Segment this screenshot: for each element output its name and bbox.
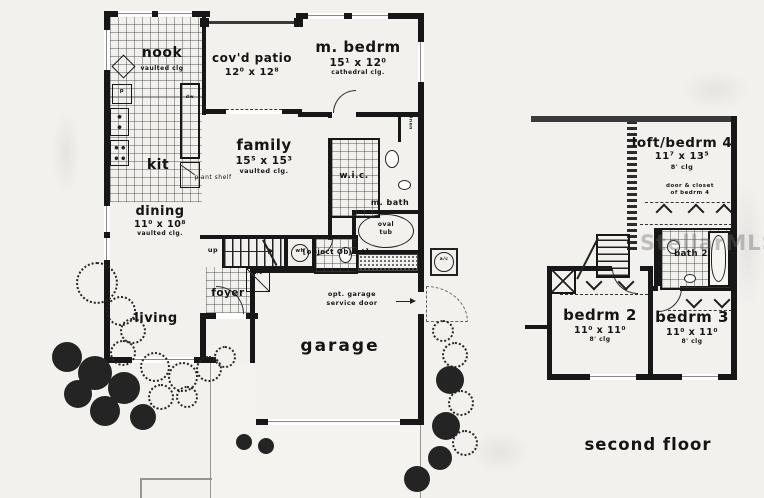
bedrm2-clg: 8' clg bbox=[589, 337, 610, 343]
patio-post bbox=[294, 18, 303, 27]
bedrm3-clg: 8' clg bbox=[681, 339, 702, 345]
hall-door-gap bbox=[328, 118, 332, 138]
plant-shelf-label: plant shelf bbox=[194, 175, 231, 181]
linen-label: linen bbox=[407, 115, 412, 130]
bath2-sink bbox=[684, 274, 696, 283]
utility-pad bbox=[358, 254, 418, 271]
patio-wall bbox=[206, 21, 300, 24]
shrub bbox=[176, 386, 198, 408]
mbedrm-clg: cathedral clg. bbox=[331, 70, 384, 76]
window bbox=[158, 11, 192, 17]
ac-condenser-label: a/c bbox=[440, 258, 449, 263]
range-burners bbox=[110, 140, 129, 166]
loft-dims: 11⁷ x 13⁵ bbox=[655, 152, 710, 163]
shrub bbox=[140, 352, 170, 382]
window bbox=[418, 42, 424, 82]
window bbox=[682, 374, 718, 380]
nook-clg: vaulted clg bbox=[140, 66, 183, 72]
hanger-chevron bbox=[688, 204, 705, 221]
closet-shelf-line bbox=[645, 202, 730, 203]
shrub bbox=[148, 384, 174, 410]
bedrm3-label: bedrm 3 bbox=[655, 310, 729, 326]
dishwasher-label: dw bbox=[186, 96, 194, 101]
service-door-note-2: service door bbox=[326, 300, 377, 307]
scan-smudge bbox=[52, 110, 80, 196]
bedrm3-dims: 11⁰ x 11⁰ bbox=[666, 328, 718, 338]
walkway-edge bbox=[140, 478, 142, 498]
second-floor-caption: second floor bbox=[584, 436, 711, 453]
loft-closet-note-2: of bedrm 4 bbox=[671, 191, 710, 197]
mbedrm-dims: 15¹ x 12⁰ bbox=[329, 58, 386, 69]
patio-dims: 12⁰ x 12⁸ bbox=[225, 68, 280, 79]
stairs-second-floor bbox=[596, 234, 630, 278]
closet-shelf-line bbox=[560, 294, 648, 295]
service-door-note-1: opt. garage bbox=[328, 291, 376, 298]
shrub bbox=[428, 446, 452, 470]
hanger-chevron bbox=[716, 204, 733, 221]
service-door-arrow bbox=[396, 301, 414, 302]
shrub bbox=[432, 320, 454, 342]
shrub bbox=[448, 390, 474, 416]
oval-tub-label-1: oval bbox=[378, 222, 394, 228]
walkway bbox=[210, 363, 256, 498]
pantry-label: p bbox=[120, 89, 124, 95]
shrub bbox=[258, 438, 274, 454]
bedrm2-label: bedrm 2 bbox=[563, 308, 637, 324]
shrub bbox=[90, 396, 120, 426]
shrub bbox=[214, 346, 236, 368]
wall-segment bbox=[202, 95, 206, 115]
linen-closet-wall bbox=[398, 114, 401, 142]
closet-shelf-line bbox=[640, 224, 732, 225]
hanger-chevron bbox=[686, 292, 703, 309]
mbath-toilet bbox=[385, 150, 399, 168]
window bbox=[308, 13, 344, 19]
service-door-gap bbox=[418, 292, 424, 314]
kitchen-sink-counter bbox=[110, 108, 129, 136]
window bbox=[590, 374, 636, 380]
scan-smudge bbox=[730, 180, 764, 310]
window bbox=[352, 13, 388, 19]
up-arrow bbox=[224, 251, 272, 252]
window bbox=[118, 11, 152, 17]
mbedrm-label: m. bedrm bbox=[315, 40, 400, 56]
shrub bbox=[442, 342, 468, 368]
shrub bbox=[64, 380, 92, 408]
shrub bbox=[52, 342, 82, 372]
shrub bbox=[110, 340, 136, 366]
mbedrm-door-arc bbox=[333, 90, 356, 113]
kit-label: kit bbox=[147, 158, 169, 173]
shrub bbox=[404, 466, 430, 492]
shrub bbox=[130, 404, 156, 430]
nook-label: nook bbox=[142, 46, 183, 61]
oval-tub-label-2: tub bbox=[380, 230, 393, 236]
mbath-sink bbox=[398, 180, 411, 190]
floor-plan-scan: dw p up wh [object Object] a/c oval tub … bbox=[0, 0, 764, 498]
patio-label: cov'd patio bbox=[212, 52, 292, 65]
sliding-door bbox=[226, 109, 282, 114]
dining-clg: vaulted clg. bbox=[137, 231, 183, 237]
scan-smudge bbox=[470, 430, 530, 474]
wall-stub bbox=[525, 325, 549, 329]
foyer-label: foyer bbox=[211, 288, 244, 299]
window bbox=[104, 30, 110, 70]
dining-dims: 11⁰ x 10⁸ bbox=[134, 220, 186, 230]
family-dims: 15⁵ x 15³ bbox=[235, 156, 292, 167]
scan-smudge bbox=[680, 70, 750, 110]
window bbox=[104, 206, 110, 232]
loft-label: loft/bedrm 4 bbox=[632, 136, 732, 150]
garage-label: garage bbox=[300, 338, 379, 356]
chase-xbox bbox=[550, 268, 576, 294]
loft-closet-note-1: door & closet bbox=[666, 184, 714, 190]
mbath-label: m. bath bbox=[371, 199, 409, 207]
up-label: up bbox=[208, 247, 218, 254]
family-clg: vaulted clg. bbox=[239, 168, 288, 175]
walkway-edge bbox=[140, 478, 212, 480]
hanger-chevron bbox=[656, 204, 673, 221]
dining-label: dining bbox=[135, 205, 184, 219]
hanger-chevron bbox=[714, 292, 731, 309]
first-floor-plan: dw p up wh [object Object] a/c oval tub … bbox=[0, 0, 500, 498]
shrub bbox=[236, 434, 252, 450]
loft-clg: 8' clg bbox=[671, 164, 694, 171]
patio-post bbox=[200, 18, 209, 27]
driveway bbox=[255, 425, 421, 498]
wall-segment bbox=[648, 266, 653, 380]
service-door-swing bbox=[426, 286, 468, 322]
window bbox=[104, 238, 110, 260]
wall-segment bbox=[298, 112, 424, 117]
wic-label: w.i.c. bbox=[339, 172, 368, 181]
bedrm2-dims: 11⁰ x 11⁰ bbox=[574, 326, 626, 336]
family-label: family bbox=[236, 138, 291, 154]
air-handler-label: a/c bbox=[253, 271, 263, 276]
